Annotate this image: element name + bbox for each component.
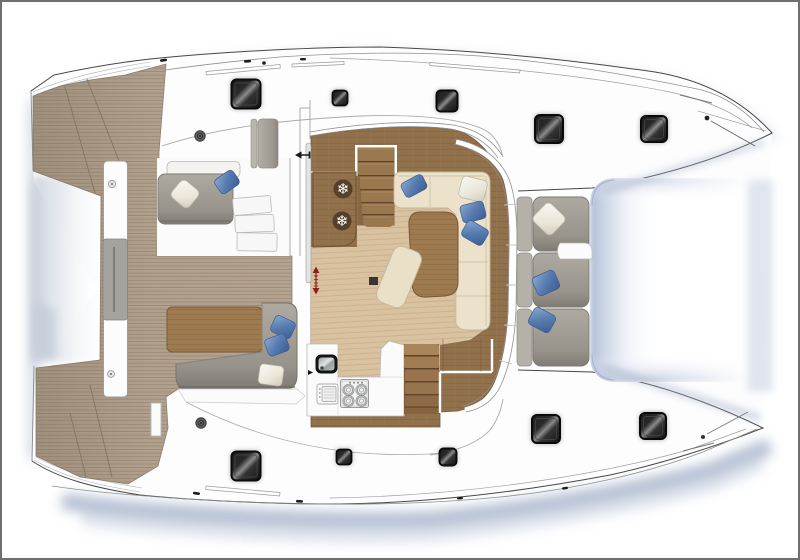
svg-text:❄: ❄ bbox=[337, 181, 350, 198]
svg-text:❄: ❄ bbox=[336, 213, 349, 230]
